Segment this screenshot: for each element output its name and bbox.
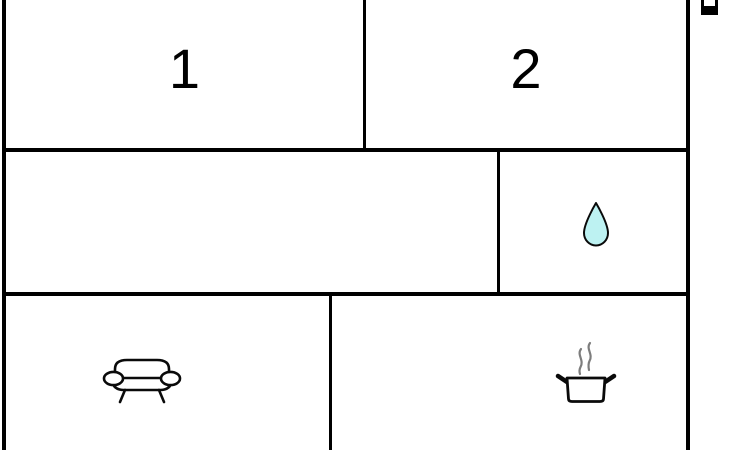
- floor-plan: 1 2: [0, 0, 730, 450]
- map-marker-icon: [701, 0, 718, 15]
- room-bedroom-2-label: 2: [510, 41, 541, 97]
- water-drop-icon: [582, 201, 610, 247]
- room-bedroom-2: 2: [366, 0, 686, 148]
- cooking-pot-icon: [555, 340, 617, 404]
- room-kitchen: [332, 296, 686, 450]
- room-bedroom-1: 1: [6, 0, 363, 148]
- room-hallway: [6, 152, 497, 292]
- sofa-icon: [102, 352, 182, 404]
- wall-outer-right: [686, 0, 690, 450]
- map-marker-fill: [704, 6, 715, 13]
- room-bedroom-1-label: 1: [169, 41, 200, 97]
